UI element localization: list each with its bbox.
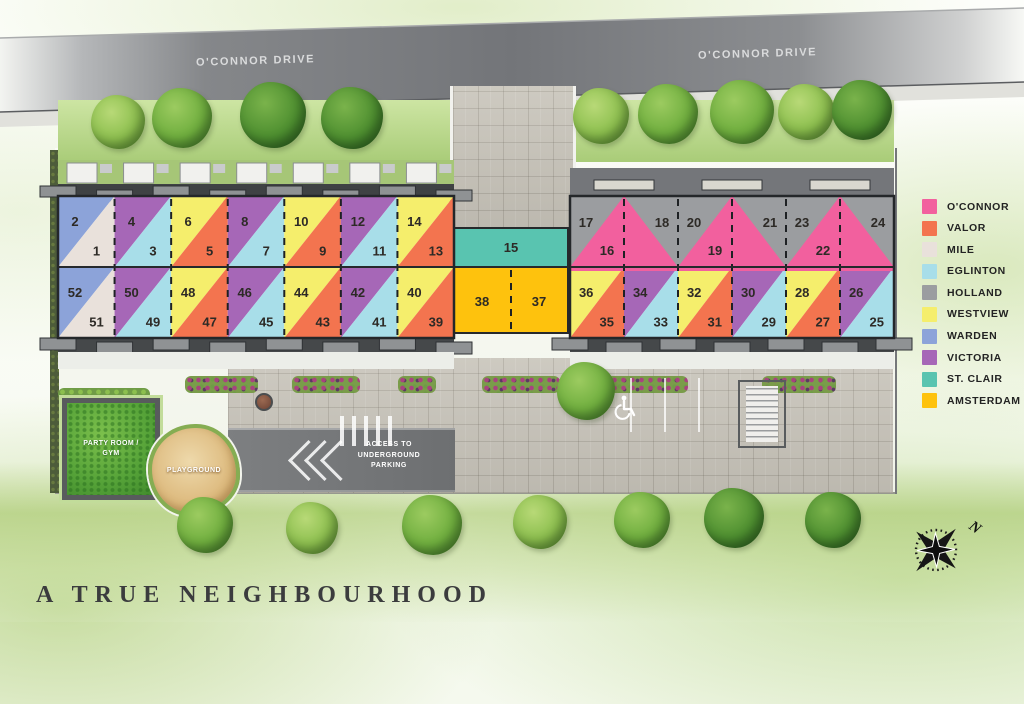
legend-item: ST. CLAIR [922,372,1021,387]
unit-number: 45 [259,315,273,330]
porch [180,163,210,183]
roof-step [266,338,302,350]
porch-step [383,164,395,173]
porch [406,163,436,183]
unit-number: 16 [600,243,614,258]
unit-number: 31 [707,315,721,330]
unit-number: 19 [708,243,722,258]
legend-item: AMSTERDAM [922,393,1021,408]
legend-item: EGLINTON [922,264,1021,279]
porch-step [213,164,225,173]
tree [638,84,698,144]
compass-north-label: N [965,518,985,539]
tree [402,495,462,555]
porch-step [157,164,169,173]
unit-number: 51 [89,315,103,330]
legend-swatch [922,242,937,257]
roof-step [153,338,189,350]
legend-label: VALOR [947,222,986,234]
unit-number: 18 [655,215,669,230]
unit-number: 23 [795,215,809,230]
unit-number: 26 [849,285,863,300]
unit-number: 34 [633,285,648,300]
walkway [58,352,454,369]
porch-step [270,164,282,173]
unit-number: 42 [351,285,365,300]
unit-number: 47 [202,315,216,330]
unit-number: 21 [763,215,777,230]
legend-swatch [922,221,937,236]
unit-number: 30 [741,285,755,300]
unit-number: 50 [124,285,138,300]
legend-label: WARDEN [947,330,997,342]
legend-label: EGLINTON [947,265,1006,277]
unit-number: 2 [71,214,78,229]
legend-swatch [922,264,937,279]
unit-number: 43 [316,315,330,330]
unit-number: 48 [181,285,195,300]
unit-number: 22 [816,243,830,258]
tree [152,88,212,148]
unit-number: 46 [237,285,251,300]
legend-label: MILE [947,244,974,256]
roof-bar [810,180,870,190]
unit-number: 14 [407,214,422,229]
unit-number: 5 [206,244,213,259]
tree [557,362,615,420]
unit-number: 33 [653,315,667,330]
legend-swatch [922,285,937,300]
porch-step [439,164,451,173]
roof-step [768,338,804,350]
tree [614,492,670,548]
tree [710,80,774,144]
roof-step [40,338,76,350]
unit-number: 40 [407,285,421,300]
legend: O'CONNORVALORMILEEGLINTONHOLLANDWESTVIEW… [922,199,1021,415]
porch-step [326,164,338,173]
legend-swatch [922,393,937,408]
unit-number: 3 [149,244,156,259]
walkway [570,352,894,369]
tree [321,87,383,149]
legend-item: VALOR [922,221,1021,236]
legend-swatch [922,372,937,387]
porch [293,163,323,183]
legend-swatch [922,307,937,322]
tree [805,492,861,548]
compass-icon: N [896,506,988,590]
unit-number: 41 [372,315,386,330]
roof-step [876,338,912,350]
legend-item: VICTORIA [922,350,1021,365]
unit-number: 17 [579,215,593,230]
legend-item: MILE [922,242,1021,257]
unit-number: 37 [532,294,546,309]
unit-number: 8 [241,214,248,229]
unit-number: 52 [68,285,82,300]
roof-step [660,338,696,350]
roof-step [552,338,588,350]
tree [704,488,764,548]
tree [91,95,145,149]
unit-number: 7 [263,244,270,259]
unit-number: 38 [475,294,489,309]
tree [832,80,892,140]
unit-number: 32 [687,285,701,300]
legend-swatch [922,350,937,365]
unit-number: 11 [372,244,386,259]
unit-number: 39 [429,315,443,330]
unit-number: 1 [93,244,100,259]
unit-number: 25 [869,315,883,330]
unit-number: 27 [815,315,829,330]
roof-step [379,338,415,350]
tree [240,82,306,148]
unit-number: 36 [579,285,593,300]
unit-number: 13 [429,244,443,259]
legend-item: WARDEN [922,329,1021,344]
unit-number: 15 [504,240,518,255]
unit-number: 9 [319,244,326,259]
legend-item: HOLLAND [922,285,1021,300]
roof-bar [702,180,762,190]
unit-number: 6 [184,214,191,229]
legend-swatch [922,329,937,344]
tree [177,497,233,553]
porch [350,163,380,183]
legend-item: O'CONNOR [922,199,1021,214]
unit-number: 35 [599,315,613,330]
porch [67,163,97,183]
legend-label: WESTVIEW [947,308,1009,320]
legend-label: O'CONNOR [947,201,1009,213]
unit-number: 20 [687,215,701,230]
legend-label: AMSTERDAM [947,395,1021,407]
unit-number: 44 [294,285,309,300]
unit-number: 4 [128,214,136,229]
unit-number: 28 [795,285,809,300]
legend-item: WESTVIEW [922,307,1021,322]
legend-label: ST. CLAIR [947,373,1003,385]
tree [513,495,567,549]
tree [778,84,834,140]
unit-number: 49 [146,315,160,330]
porch-step [100,164,112,173]
unit-number: 29 [761,315,775,330]
unit-number: 10 [294,214,308,229]
site-plan: O'CONNOR DRIVE O'CONNOR DRIVE ACCESS TO … [0,0,1024,704]
roof-bar [594,180,654,190]
unit-number: 24 [871,215,886,230]
porch [237,163,267,183]
legend-label: HOLLAND [947,287,1003,299]
unit-number: 12 [351,214,365,229]
legend-label: VICTORIA [947,352,1002,364]
legend-swatch [922,199,937,214]
tree [573,88,629,144]
site-plan-title: A TRUE NEIGHBOURHOOD [36,582,493,609]
tree [286,502,338,554]
porch [124,163,154,183]
